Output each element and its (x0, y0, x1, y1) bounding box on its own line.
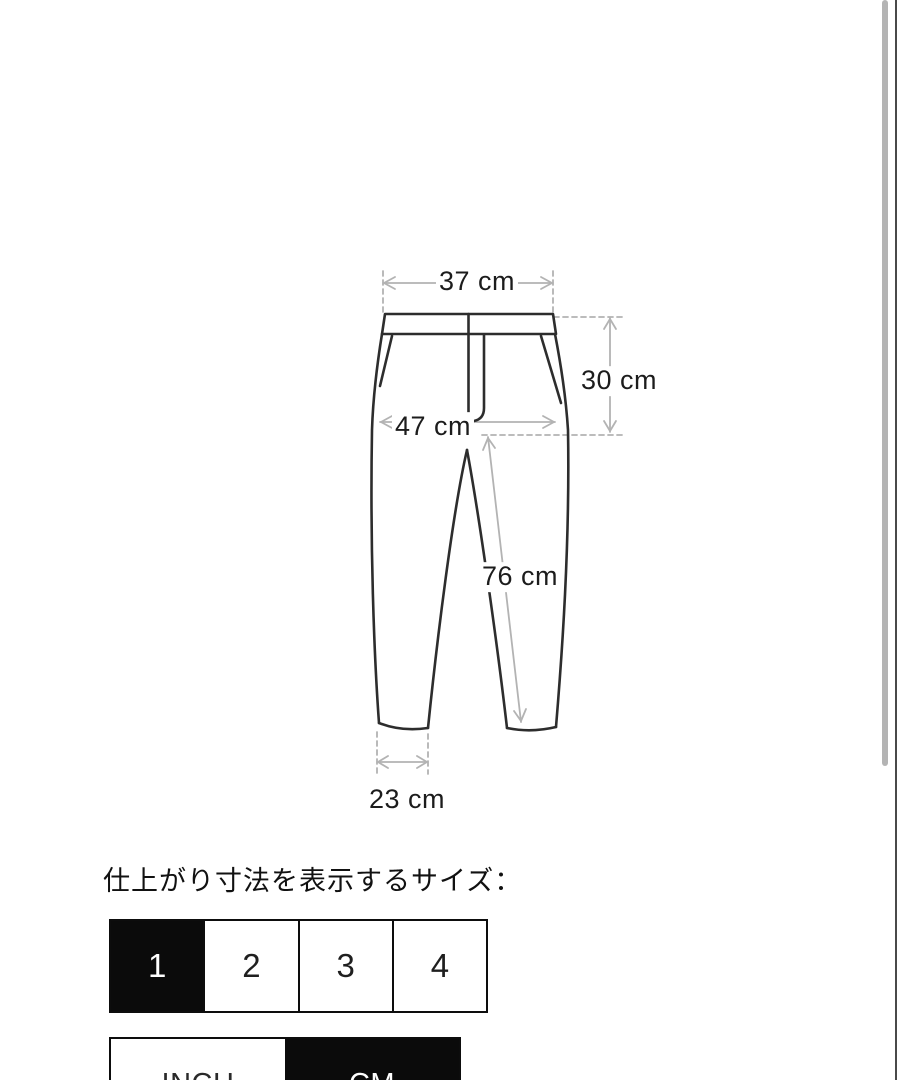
size-option-3[interactable]: 3 (298, 921, 392, 1011)
pants-outline (371, 314, 568, 730)
size-option-1[interactable]: 1 (111, 921, 203, 1011)
inseam-label: 76 cm (479, 562, 561, 592)
rise-label: 30 cm (578, 366, 660, 396)
unit-toggle-cm[interactable]: CM (285, 1039, 459, 1080)
panel-right-border (895, 0, 897, 1080)
unit-toggle-inch[interactable]: INCH (111, 1039, 285, 1080)
hem-width-label: 23 cm (366, 785, 448, 815)
pants-diagram (0, 0, 898, 1080)
size-section-caption: 仕上がり寸法を表示するサイズ： (103, 859, 522, 898)
size-selector: 1 2 3 4 (109, 919, 488, 1013)
waist-width-label: 37 cm (436, 267, 518, 297)
unit-toggle: INCH CM (109, 1037, 461, 1080)
scrollbar-thumb[interactable] (882, 0, 888, 766)
size-chart-page: 37 cm 30 cm 47 cm 76 cm 23 cm 仕上がり寸法を表示す… (0, 0, 898, 1080)
dimension-lines (377, 271, 623, 774)
hip-width-label: 47 cm (392, 412, 474, 442)
size-option-4[interactable]: 4 (392, 921, 486, 1011)
size-option-2[interactable]: 2 (203, 921, 297, 1011)
